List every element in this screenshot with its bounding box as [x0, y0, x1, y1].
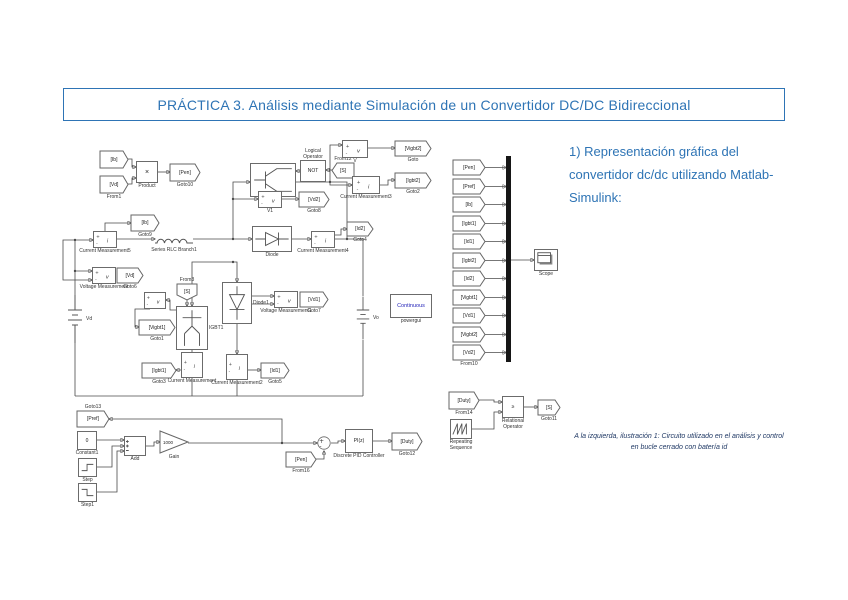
goto12-duty: [Duty]Goto12: [392, 433, 422, 450]
goto8-vd2-label: Goto8: [307, 208, 321, 214]
step1-block: Step1: [78, 483, 97, 502]
mux-from-ib: [Ib]: [453, 197, 485, 212]
from3-s: [S]From3: [177, 284, 197, 300]
scope-block: Scope: [534, 249, 558, 271]
voltage-measurement: +-vVoltage Measurement: [92, 267, 116, 284]
from16-pen-label: From16: [292, 468, 309, 474]
mux-from-igbt1: [Igbt1]: [453, 216, 485, 231]
svg-text:+: +: [95, 270, 99, 276]
goto2-igbt2-label: Goto2: [406, 189, 420, 195]
battery-vo-label: Vo: [373, 315, 379, 321]
voltage-measurement-label: Voltage Measurement: [80, 284, 129, 290]
product-block: ×Product: [136, 161, 158, 183]
goto8-vd2: [Vd2]Goto8: [299, 192, 329, 207]
powergui-block: Continuouspowergui: [390, 294, 432, 318]
from1-vd-label: From1: [107, 194, 121, 200]
diode1-block-label: Diode1: [253, 300, 269, 306]
svg-text:i: i: [107, 239, 109, 245]
scope-block-label: Scope: [539, 271, 553, 277]
svg-text:v: v: [357, 148, 361, 154]
current-meas2-label: Current Measurement2: [211, 380, 262, 386]
goto-vigbt2-label: Goto: [408, 157, 419, 163]
simulink-diagram: [Ib][Vd]From1×Product[Pen]Goto10IGBTNOTL…: [0, 0, 848, 600]
svg-text:-: -: [357, 188, 359, 193]
current-meas1: +-iCurrent Measurement: [181, 352, 203, 378]
voltage-meas1: +-vVoltage Measurement1: [274, 291, 298, 308]
goto11-s: [S]Goto11: [538, 400, 560, 415]
series-rlc-branch1: Series RLC Branch1: [155, 232, 193, 246]
current-meas4: +-iCurrent Measurement4: [311, 231, 335, 248]
goto3-igbt1: [Igbt1]Goto3: [142, 363, 176, 378]
gain-block-label: Gain: [169, 454, 180, 460]
mux-from-id2: [Id2]: [453, 271, 485, 286]
svg-text:-: -: [95, 278, 97, 283]
current-meas4-label: Current Measurement4: [297, 248, 348, 254]
voltage-meas-igbt1: +-v: [144, 292, 166, 309]
current-meas3-label: Current Measurement3: [340, 194, 391, 200]
mux-from-vigbt2: [Vigbt2]: [453, 327, 485, 342]
diode1-block: Diode1: [222, 282, 252, 324]
battery-vd-label: Vd: [86, 316, 92, 322]
goto9-ib: [Ib]Goto9: [131, 215, 159, 231]
voltage-meas1-label: Voltage Measurement1: [260, 308, 311, 314]
goto7-vd1: [Vd1]Goto7: [300, 292, 328, 307]
svg-text:i: i: [239, 366, 241, 372]
goto6-vd-label: Goto6: [123, 284, 137, 290]
goto3-igbt1-label: Goto3: [152, 379, 166, 385]
repeating-sequence: Repeating Sequence: [450, 419, 472, 439]
mux-from-vd2-label: From10: [460, 361, 477, 367]
from14-duty-label: From14: [455, 410, 472, 416]
mux-from-pref: [Pref]: [453, 179, 485, 194]
from12-s: [S]From12: [332, 163, 354, 178]
mux-bar: [506, 156, 511, 362]
sum-block: +-: [317, 436, 331, 450]
goto9-ib-label: Goto9: [138, 232, 152, 238]
svg-text:+: +: [261, 194, 265, 200]
repeating-sequence-label: Repeating Sequence: [440, 439, 482, 451]
goto4-id2-label: Goto4: [353, 237, 367, 243]
svg-text:+: +: [96, 234, 100, 240]
svg-text:+: +: [229, 362, 233, 367]
step-block: Step: [78, 458, 97, 477]
goto5-id1: [Id1]Goto5: [261, 363, 289, 378]
mux-from-vd2: [Vd2]From10: [453, 345, 485, 360]
powergui-block-label: powergui: [401, 318, 421, 324]
svg-text:v: v: [272, 199, 276, 205]
constant1-block-label: Constant1: [76, 450, 99, 456]
goto2-igbt2: [Igbt2]Goto2: [395, 173, 431, 188]
battery-vd: Vd: [66, 295, 84, 343]
svg-text:v: v: [157, 299, 161, 305]
svg-text:+: +: [357, 180, 361, 186]
from1-vd: [Vd]From1: [100, 176, 128, 193]
from16-pen: [Pen]From16: [286, 452, 316, 467]
svg-text:+: +: [147, 295, 151, 300]
diode-block: Diode: [252, 226, 292, 252]
battery-vo: Vo: [355, 296, 371, 340]
goto5-id1-label: Goto5: [268, 379, 282, 385]
from-ib: [Ib]: [100, 151, 128, 168]
goto10-pen-label: Goto10: [177, 182, 193, 188]
goto6-vd: [Vd]Goto6: [117, 268, 143, 283]
svg-text:-: -: [346, 152, 348, 157]
current-meas1-label: Current Measurement: [168, 378, 217, 384]
add-block-label: Add: [131, 456, 140, 462]
svg-text:v: v: [288, 299, 292, 305]
igbt1-block-label: IGBT1: [209, 325, 223, 331]
page: PRÁCTICA 3. Análisis mediante Simulación…: [0, 0, 848, 600]
svg-text:i: i: [325, 239, 327, 245]
discrete-pid-controller: PI(z)Discrete PID Controller: [345, 429, 373, 453]
goto12-duty-label: Goto12: [399, 451, 415, 457]
svg-text:+: +: [277, 294, 281, 300]
current-meas3: +-iCurrent Measurement3: [352, 176, 380, 194]
product-block-label: Product: [138, 183, 155, 189]
voltage-meas-v: +-vV: [342, 140, 368, 158]
goto11-s-label: Goto11: [541, 416, 557, 422]
step1-block-label: Step1: [81, 502, 94, 508]
current-meas5-label: Current Measurement5: [79, 248, 130, 254]
logical-operator-not-label: Logical Operator: [295, 148, 331, 160]
voltage-meas-v1: +-vV1: [258, 191, 282, 208]
svg-text:-: -: [184, 366, 186, 371]
current-meas2: +-iCurrent Measurement2: [226, 354, 248, 380]
current-meas5: +-iCurrent Measurement5: [93, 231, 117, 248]
svg-text:-: -: [147, 302, 149, 307]
gain-block: 1000Gain: [160, 431, 188, 453]
svg-text:-: -: [319, 443, 321, 450]
mux-from-vd1: [Vd1]: [453, 308, 485, 323]
mux-from-pen: [Pen]: [453, 160, 485, 175]
voltage-meas-v-label: V: [353, 158, 356, 164]
goto7-vd1-label: Goto7: [307, 308, 321, 314]
mux-from-igbt2: [Igbt2]: [453, 253, 485, 268]
svg-text:i: i: [368, 184, 370, 190]
svg-text:-: -: [96, 242, 98, 247]
svg-text:+: +: [314, 234, 318, 240]
from14-duty: [Duty]From14: [449, 392, 479, 409]
from3-s-label: From3: [180, 277, 194, 283]
svg-text:-: -: [261, 202, 263, 207]
goto4-id2: [Id2]Goto4: [347, 222, 373, 236]
add-block: Add: [124, 436, 146, 456]
goto10-pen: [Pen]Goto10: [170, 164, 200, 181]
goto13-pref: [Pref]Goto13: [77, 411, 109, 427]
svg-text:i: i: [194, 364, 196, 370]
svg-text:+: +: [346, 144, 350, 150]
svg-text:-: -: [314, 242, 316, 247]
goto13-pref-label: Goto13: [85, 404, 101, 410]
document-page: { "title": { "text": "PRÁCTICA 3. Anális…: [0, 0, 848, 600]
relational-operator-label: Relational Operator: [493, 418, 533, 430]
igbt1-block: IGBT1: [176, 306, 208, 350]
svg-text:-: -: [229, 368, 231, 373]
goto-vigbt2: [Vigbt2]Goto: [395, 141, 431, 156]
series-rlc-branch1-label: Series RLC Branch1: [151, 247, 197, 253]
discrete-pid-controller-label: Discrete PID Controller: [333, 453, 384, 459]
relational-operator: ≥Relational Operator: [502, 396, 524, 418]
mux-from-vigbt1: [Vigbt1]: [453, 290, 485, 305]
logical-operator-not: NOTLogical Operator: [300, 160, 326, 182]
svg-text:v: v: [106, 275, 110, 281]
diode-block-label: Diode: [265, 252, 278, 258]
svg-text:+: +: [184, 360, 188, 365]
mux-from-id1: [Id1]: [453, 234, 485, 249]
constant1-block: 0Constant1: [77, 431, 97, 450]
voltage-meas-v1-label: V1: [267, 208, 273, 214]
goto1-vigbt1: [Vigbt1]Goto1: [139, 320, 175, 335]
svg-text:-: -: [277, 302, 279, 307]
goto1-vigbt1-label: Goto1: [150, 336, 164, 342]
